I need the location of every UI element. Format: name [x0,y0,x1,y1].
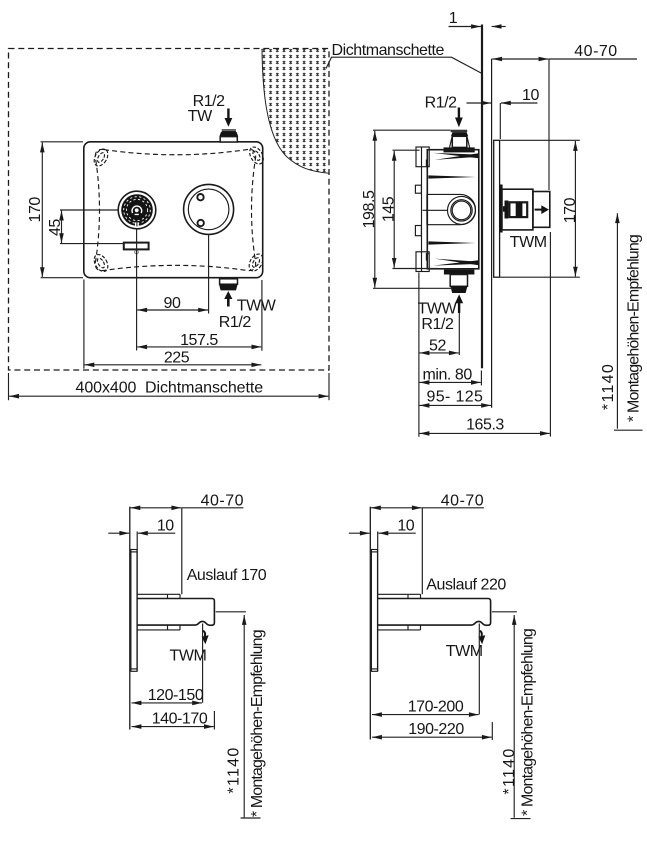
svg-text:10: 10 [397,518,414,535]
svg-text:198.5: 198.5 [361,190,378,228]
svg-text:R1/2: R1/2 [425,95,458,112]
svg-text:157.5: 157.5 [180,332,218,349]
svg-text:Auslauf 170: Auslauf 170 [187,567,267,584]
svg-text:Dichtmanschette: Dichtmanschette [332,42,445,59]
svg-text:170-200: 170-200 [408,699,464,716]
svg-text:40-70: 40-70 [201,493,244,510]
svg-text:Auslauf 220: Auslauf 220 [426,576,506,593]
svg-text:R1/2: R1/2 [219,314,252,331]
svg-text:*1140: *1140 [600,363,617,410]
svg-text:TWM: TWM [510,234,547,251]
svg-text:TWM: TWM [170,647,207,664]
svg-text:* Montagehöhen-Empfehlung: * Montagehöhen-Empfehlung [520,629,537,816]
svg-text:190-220: 190-220 [408,721,464,738]
svg-text:*1140: *1140 [226,746,243,793]
svg-text:52: 52 [429,337,446,354]
svg-text:TWW: TWW [418,301,458,318]
svg-text:* Montagehöhen-Empfehlung: * Montagehöhen-Empfehlung [249,630,266,817]
svg-text:170: 170 [27,197,44,223]
svg-text:* Montagehöhen-Empfehlung: * Montagehöhen-Empfehlung [626,235,643,422]
svg-text:R1/2: R1/2 [421,316,454,333]
svg-text:*1140: *1140 [501,747,518,794]
svg-text:95- 125: 95- 125 [427,388,484,405]
svg-text:TW: TW [188,108,213,125]
svg-text:120-150: 120-150 [148,687,204,704]
svg-text:TWW: TWW [237,298,277,315]
svg-text:170: 170 [562,197,579,223]
svg-text:145: 145 [380,196,397,222]
svg-text:400x400 Dichtmanschette: 400x400 Dichtmanschette [76,379,264,396]
svg-text:min. 80: min. 80 [423,367,473,384]
svg-text:165.3: 165.3 [466,416,504,433]
svg-text:225: 225 [164,349,190,366]
svg-text:90: 90 [164,295,181,312]
svg-text:10: 10 [522,87,539,104]
svg-text:40-70: 40-70 [441,493,484,510]
svg-text:1: 1 [449,10,458,27]
svg-text:40-70: 40-70 [574,43,617,60]
svg-text:45: 45 [47,219,64,236]
svg-text:10: 10 [157,518,174,535]
svg-text:140-170: 140-170 [152,711,208,728]
svg-text:TWM: TWM [446,643,483,660]
